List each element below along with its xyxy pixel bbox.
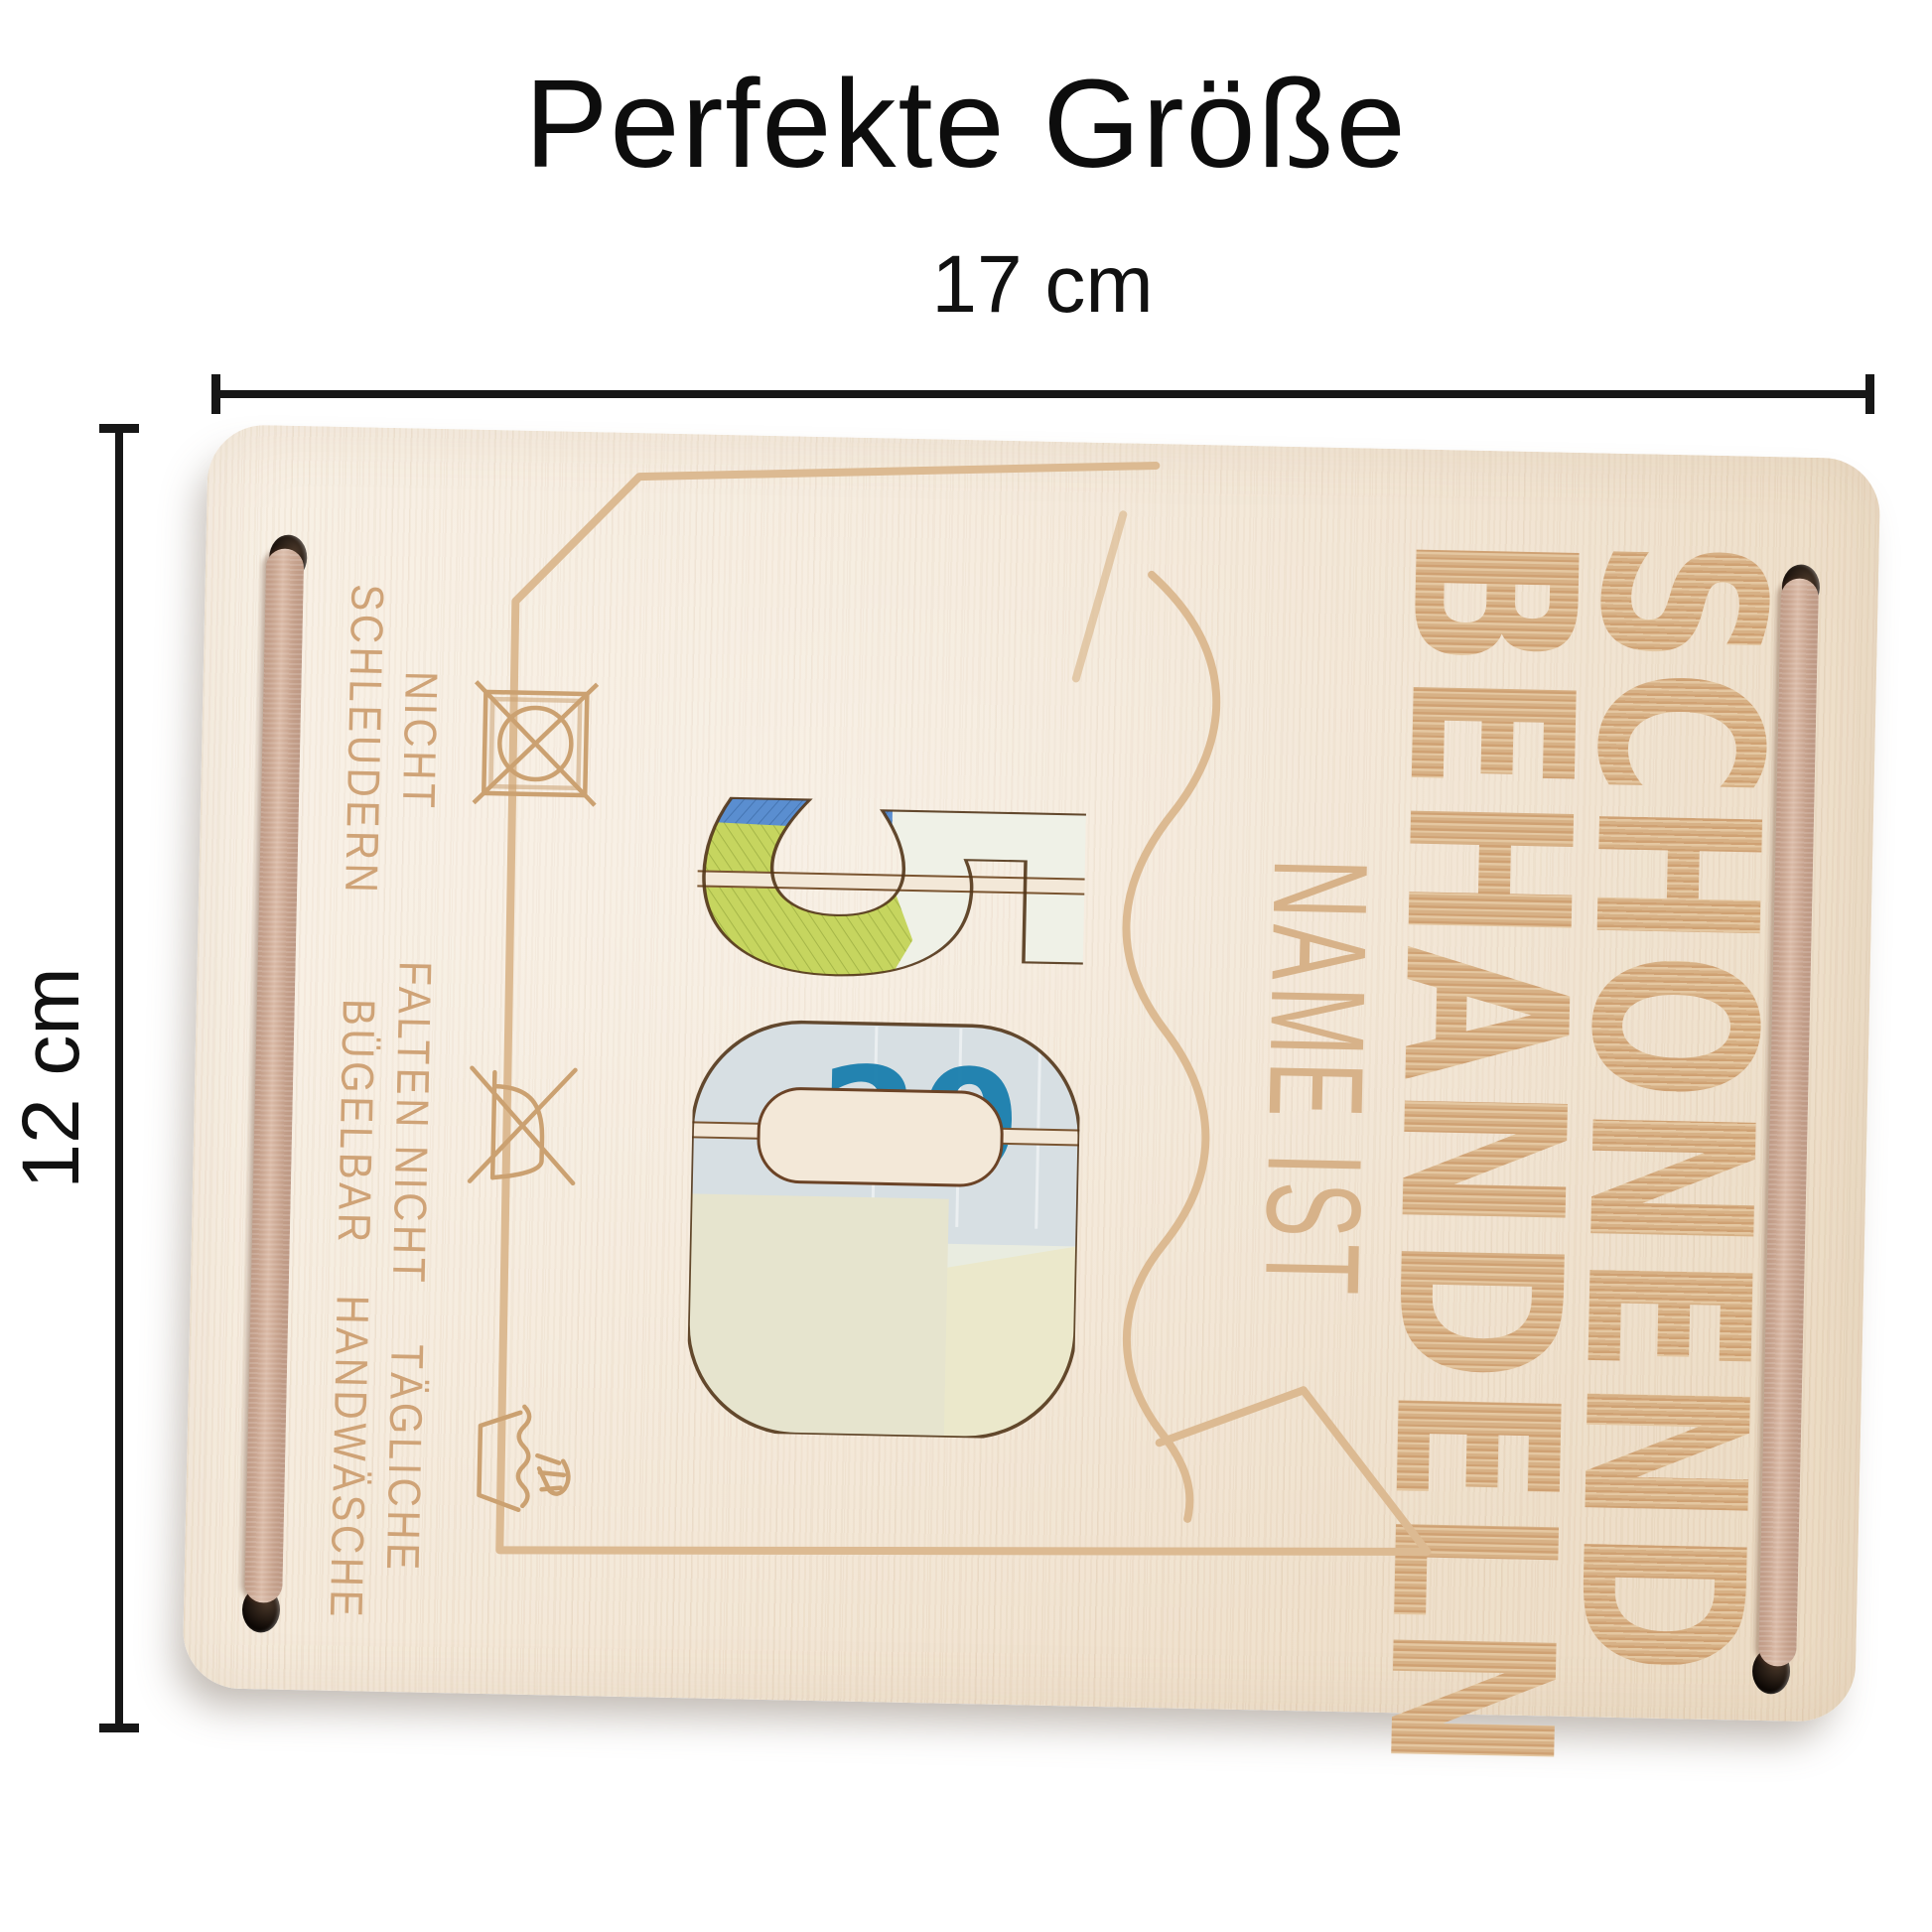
height-dimension-line [115,424,123,1732]
handwash-icon [455,1395,587,1527]
height-dimension-label: 12 cm [5,967,98,1188]
care-label-line: SCHLEUDERN [333,547,396,932]
no-iron-icon [462,1060,594,1192]
amount-cutout-50: 5 [686,766,1087,1440]
card-engraved-design: SCHONEND BEHANDELN NAME IST 5 [182,424,1880,1723]
care-label-line: HANDWÄSCHE [318,1265,381,1650]
wooden-money-gift-card: SCHONEND BEHANDELN NAME IST 5 [182,424,1880,1723]
no-spin-icon [470,678,602,810]
care-label-line: NICHT [388,548,452,933]
width-dimension-label: 17 cm [931,238,1153,332]
product-size-infographic: Perfekte Größe 17 cm 12 cm SCHONEND BEHA… [0,0,1932,1932]
care-group-handwash: TÄGLICHE HANDWÄSCHE [318,1239,590,1681]
width-dimension-line [211,390,1874,398]
digit-five-edge: 5 [686,770,1087,1005]
care-label-line: TÄGLICHE [373,1266,437,1651]
care-group-no-spin: NICHT SCHLEUDERN [333,521,605,963]
page-title: Perfekte Größe [524,52,1407,196]
